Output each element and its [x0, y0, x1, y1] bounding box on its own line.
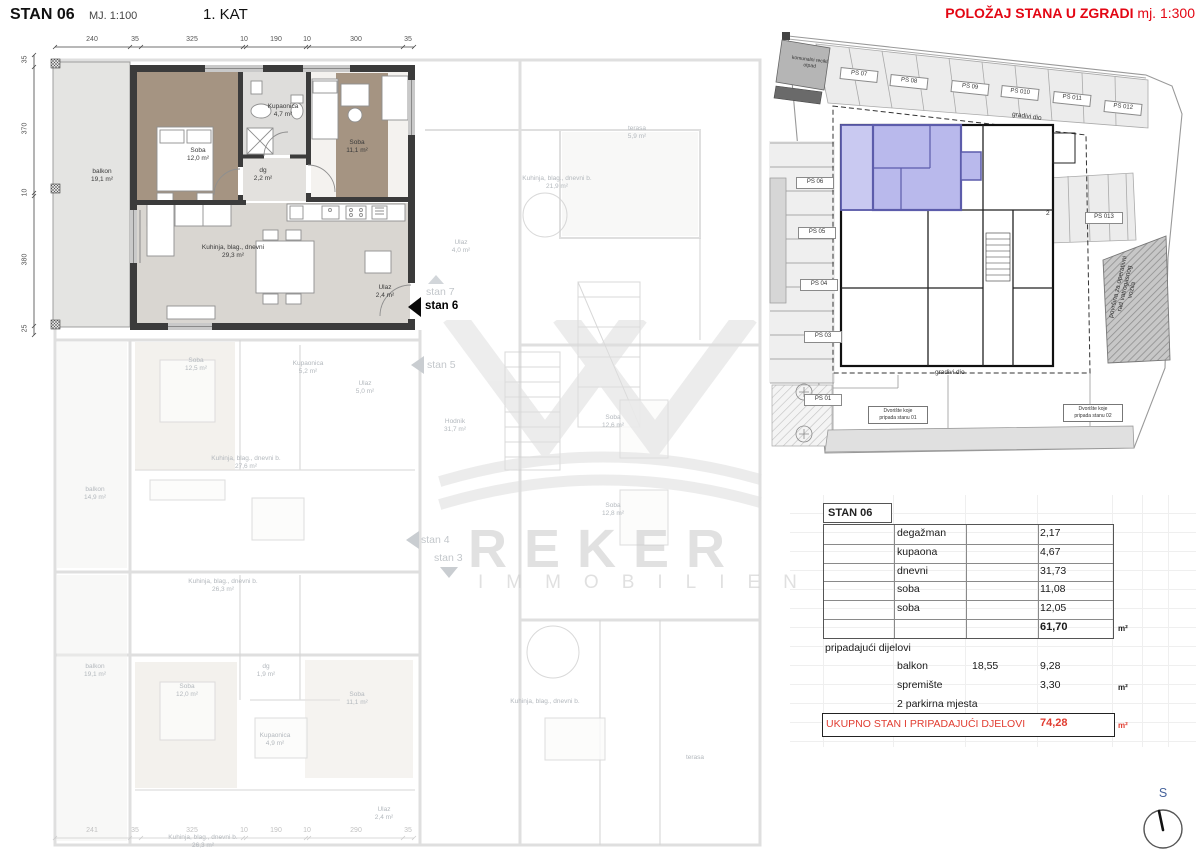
site-plan-title: POLOŽAJ STANA U ZGRADI mj. 1:300	[945, 5, 1195, 21]
parking-spot-label-partial: 2	[1046, 210, 1050, 217]
faded-room-label: balkon 19,1 m²	[65, 663, 125, 680]
dim-bottom: 35	[395, 827, 421, 834]
site-plan-scale: mj. 1:300	[1137, 5, 1195, 21]
area-table: STAN 06 degažman 2,17 kupaona 4,67 dnevn…	[790, 495, 1196, 747]
dim-bottom: 10	[231, 827, 257, 834]
arrow-left-icon	[411, 356, 424, 374]
dim-top: 325	[179, 36, 205, 43]
faded-room-label: terasa	[665, 754, 725, 762]
row-label: soba	[897, 602, 920, 614]
kitchen-counter	[287, 204, 405, 221]
watermark-subtext: IMMOBILIEN	[478, 572, 820, 594]
stan-4-label: stan 4	[421, 534, 450, 546]
dim-left: 370	[22, 116, 29, 142]
wardrobe	[382, 76, 408, 120]
stan-3-label: stan 3	[434, 552, 463, 564]
dim-bottom: 241	[79, 827, 105, 834]
parking-spot-label: PS 05	[798, 227, 836, 239]
row-value: 9,28	[1040, 660, 1060, 672]
dining-table	[256, 230, 314, 304]
dim-bottom: 190	[263, 827, 289, 834]
dim-top: 10	[231, 36, 257, 43]
row-raw-value: 18,55	[972, 660, 998, 672]
compass-icon	[1128, 786, 1198, 855]
table-divider	[824, 600, 1113, 601]
faded-room-label: Ulaz 2,4 m²	[354, 806, 414, 823]
watermark-text: REKER	[468, 518, 742, 580]
dim-top: 35	[395, 36, 421, 43]
waste-area	[774, 40, 830, 104]
dim-left: 25	[22, 316, 29, 342]
stan-5-label: stan 5	[427, 359, 456, 371]
compass: S	[1128, 786, 1198, 855]
dim-left: 380	[22, 247, 29, 273]
sideboard	[167, 306, 215, 319]
bottom-strip	[825, 426, 1134, 452]
row-label: balkon	[897, 660, 928, 672]
table-divider	[824, 581, 1113, 582]
faded-room-label: Kupaonica 4,9 m²	[245, 732, 305, 749]
row-label: dnevni	[897, 565, 928, 577]
faded-room-label: Kuhinja, blag., dnevni b.	[490, 698, 600, 706]
watermark-logo	[430, 320, 770, 520]
table-divider	[824, 544, 1113, 545]
floor-label: 1. KAT	[203, 6, 248, 23]
faded-room-label: Soba 12,0 m²	[157, 683, 217, 700]
room-label-dg: dg 2,2 m²	[233, 167, 293, 184]
faded-room-label: balkon 14,9 m²	[65, 486, 125, 503]
parking-strip-right	[1048, 173, 1136, 243]
total-value: 74,28	[1040, 717, 1068, 729]
dim-bottom: 325	[179, 827, 205, 834]
plot-boundary-label: gradivi dio	[935, 369, 965, 376]
dim-top: 35	[122, 36, 148, 43]
dim-top: 300	[343, 36, 369, 43]
faded-room-label: Soba 12,5 m²	[166, 357, 226, 374]
arrow-down-icon	[440, 567, 458, 578]
row-label: soba	[897, 583, 920, 595]
parking-spot-label: PS 06	[796, 177, 834, 189]
parking-spot-label: PS 01	[804, 394, 842, 406]
row-label: spremište	[897, 679, 943, 691]
dim-bottom: 290	[343, 827, 369, 834]
balcony	[51, 59, 130, 329]
room-label-kuhinja: Kuhinja, blag., dnevni 29,3 m²	[178, 244, 288, 261]
total-label: UKUPNO STAN I PRIPADAJUĆI DJELOVI	[826, 718, 1025, 730]
arrow-left-icon	[406, 531, 419, 549]
page-title: STAN 06	[10, 6, 75, 24]
faded-room-label: Ulaz 4,0 m²	[431, 239, 491, 256]
parking-note: 2 parkirna mjesta	[897, 698, 978, 710]
row-label: kupaona	[897, 546, 937, 558]
dim-top: 10	[294, 36, 320, 43]
room-label-kupaonica: Kupaonica 4,7 m²	[253, 103, 313, 120]
entry-closet	[365, 251, 391, 273]
table-divider	[824, 563, 1113, 564]
dim-bottom: 35	[122, 827, 148, 834]
drawing-sheet: STAN 06 MJ. 1:100 1. KAT POLOŽAJ STANA U…	[0, 0, 1200, 855]
unit-m2: m²	[1118, 683, 1128, 692]
row-value: 3,30	[1040, 679, 1060, 691]
row-label: degažman	[897, 527, 946, 539]
entry-arrow-icon	[408, 297, 421, 317]
highlighted-unit	[841, 125, 981, 210]
table-main-box	[823, 524, 1114, 639]
row-value: 4,67	[1040, 546, 1060, 558]
dim-top: 190	[263, 36, 289, 43]
table-header: STAN 06	[823, 503, 892, 523]
site-plan-title-text: POLOŽAJ STANA U ZGRADI	[945, 5, 1133, 21]
faded-room-label: Ulaz 5,0 m²	[335, 380, 395, 397]
unit-m2: m²	[1118, 624, 1128, 633]
dim-left: 10	[22, 180, 29, 206]
parking-spot-label: PS 03	[804, 331, 842, 343]
faded-room-label: Kuhinja, blag., dnevni b. 26,3 m²	[148, 834, 258, 851]
stan-7-label: stan 7	[426, 286, 455, 298]
row-value: 2,17	[1040, 527, 1060, 539]
row-value: 31,73	[1040, 565, 1066, 577]
unit-floorplan	[50, 55, 430, 345]
dim-top: 240	[79, 36, 105, 43]
room-label-soba1: Soba 12,0 m²	[168, 147, 228, 164]
faded-room-label: Kuhinja, blag., dnevni b. 21,9 m²	[502, 175, 612, 192]
faded-room-label: Kuhinja, blag., dnevni b. 27,6 m²	[191, 455, 301, 472]
section-label: pripadajući dijelovi	[825, 642, 911, 654]
yard-label-1: Dvorište koje pripada stanu 01	[868, 406, 928, 424]
plan-scale: MJ. 1:100	[89, 10, 137, 22]
parking-spot-label: PS 013	[1085, 212, 1123, 224]
subtotal-value: 61,70	[1040, 621, 1068, 633]
faded-room-label: Kupaonica 5,2 m²	[278, 360, 338, 377]
parking-spot-label: PS 04	[800, 279, 838, 291]
faded-room-label: Soba 11,1 m²	[327, 691, 387, 708]
dim-bottom: 10	[294, 827, 320, 834]
faded-room-label: terasa 5,9 m²	[607, 125, 667, 142]
arrow-up-icon	[428, 275, 444, 284]
room-label-soba2: Soba 11,1 m²	[327, 139, 387, 156]
stan-6-label: stan 6	[425, 300, 458, 312]
bed-single	[312, 79, 338, 139]
row-value: 12,05	[1040, 602, 1066, 614]
faded-room-label: Kuhinja, blag., dnevni b. 26,3 m²	[168, 578, 278, 595]
unit-m2: m²	[1118, 721, 1128, 730]
table-divider	[824, 619, 1113, 620]
room-label-balkon: balkon 19,1 m²	[72, 168, 132, 185]
row-value: 11,08	[1040, 583, 1066, 595]
faded-room-label: dg 1,9 m²	[236, 663, 296, 680]
dim-left: 35	[22, 47, 29, 73]
yard-label-2: Dvorište koje pripada stanu 02	[1063, 404, 1123, 422]
room-label-ulaz: Ulaz 2,4 m²	[355, 284, 415, 301]
